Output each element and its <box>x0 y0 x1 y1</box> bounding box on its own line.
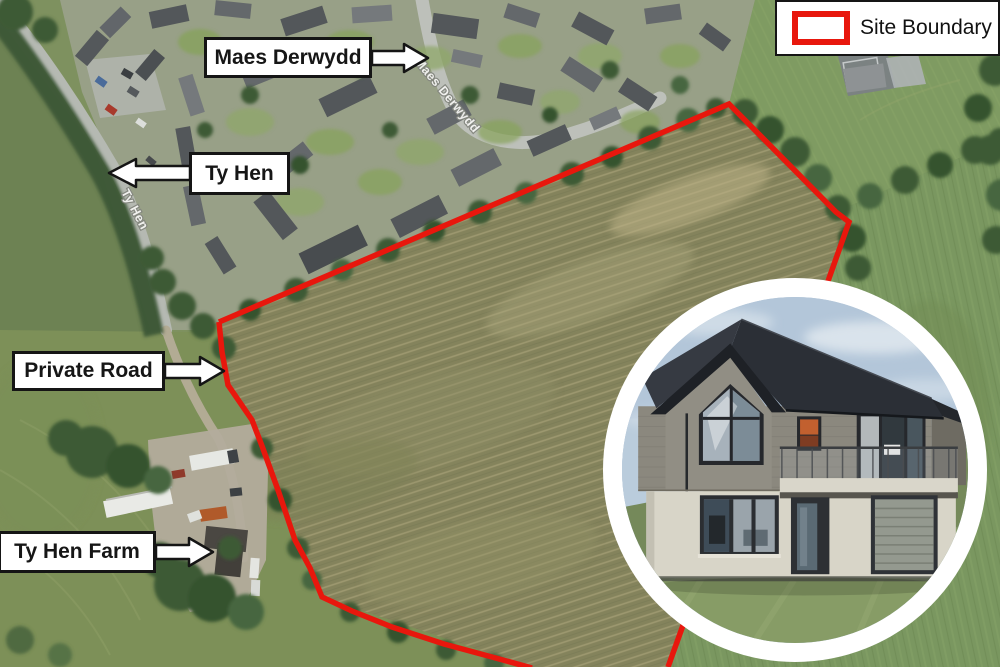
balcony-glass <box>780 447 958 478</box>
house-3d-render <box>622 297 968 643</box>
house-render-inset <box>603 278 987 662</box>
callout-label: Private Road <box>24 359 152 383</box>
callout-ty-hen: Ty Hen <box>189 152 290 195</box>
legend-label: Site Boundary <box>860 16 992 40</box>
balcony-deck <box>780 478 958 492</box>
orange-window <box>800 419 818 434</box>
callout-private-road: Private Road <box>12 351 165 391</box>
legend-site-boundary: Site Boundary <box>775 0 1000 56</box>
callout-label: Maes Derwydd <box>214 46 361 70</box>
site-location-plan: Maes Derwydd Ty Hen <box>0 0 1000 667</box>
callout-label: Ty Hen <box>205 162 273 186</box>
callout-maes-derwydd: Maes Derwydd <box>204 37 372 78</box>
site-boundary-swatch-icon <box>792 11 850 45</box>
front-door <box>797 503 817 570</box>
callout-label: Ty Hen Farm <box>14 540 140 564</box>
garage-door <box>875 499 934 570</box>
callout-ty-hen-farm: Ty Hen Farm <box>0 531 156 573</box>
